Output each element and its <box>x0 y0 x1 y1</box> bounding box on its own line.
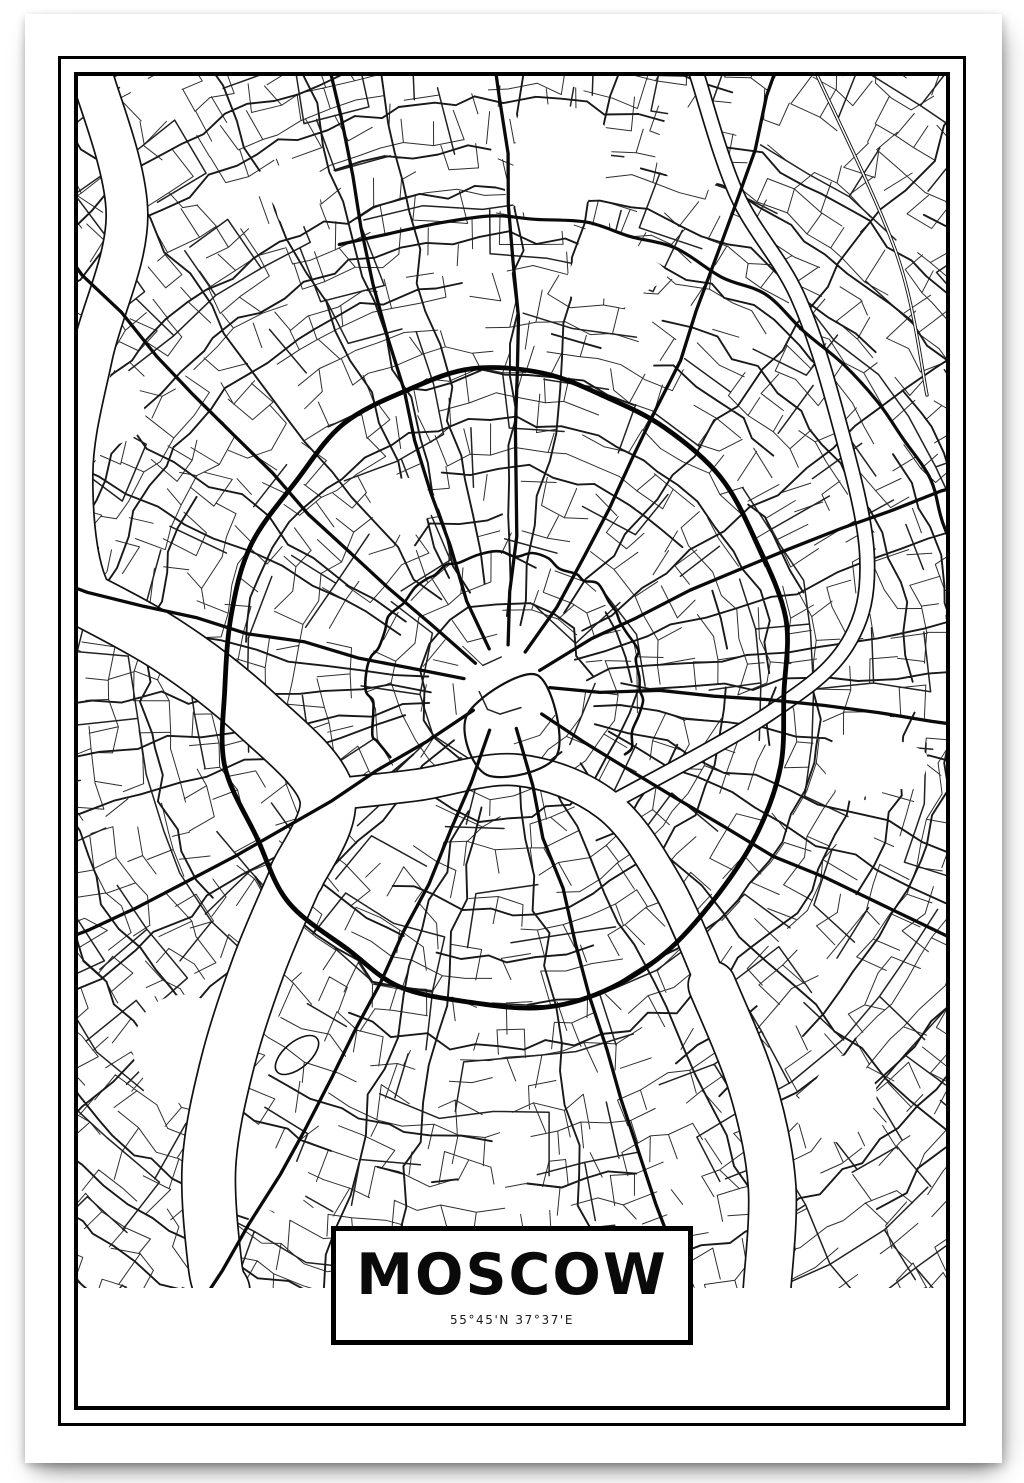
railway-gap <box>817 76 927 395</box>
railway <box>817 76 927 395</box>
city-street-map <box>78 76 946 1406</box>
moscow-map-poster: MOSCOW 55°45'N 37°37'E <box>25 14 1002 1463</box>
city-title: MOSCOW <box>356 1247 667 1304</box>
title-box: MOSCOW 55°45'N 37°37'E <box>331 1226 693 1345</box>
park-area <box>252 164 324 227</box>
park-area <box>791 1056 877 1143</box>
outer-frame: MOSCOW 55°45'N 37°37'E <box>58 56 966 1426</box>
map-frame: MOSCOW 55°45'N 37°37'E <box>74 72 950 1410</box>
river-water <box>78 585 328 875</box>
park-area <box>825 708 928 801</box>
stadium <box>269 1028 326 1081</box>
city-coordinates: 55°45'N 37°37'E <box>450 1313 574 1327</box>
river-water <box>78 76 167 645</box>
